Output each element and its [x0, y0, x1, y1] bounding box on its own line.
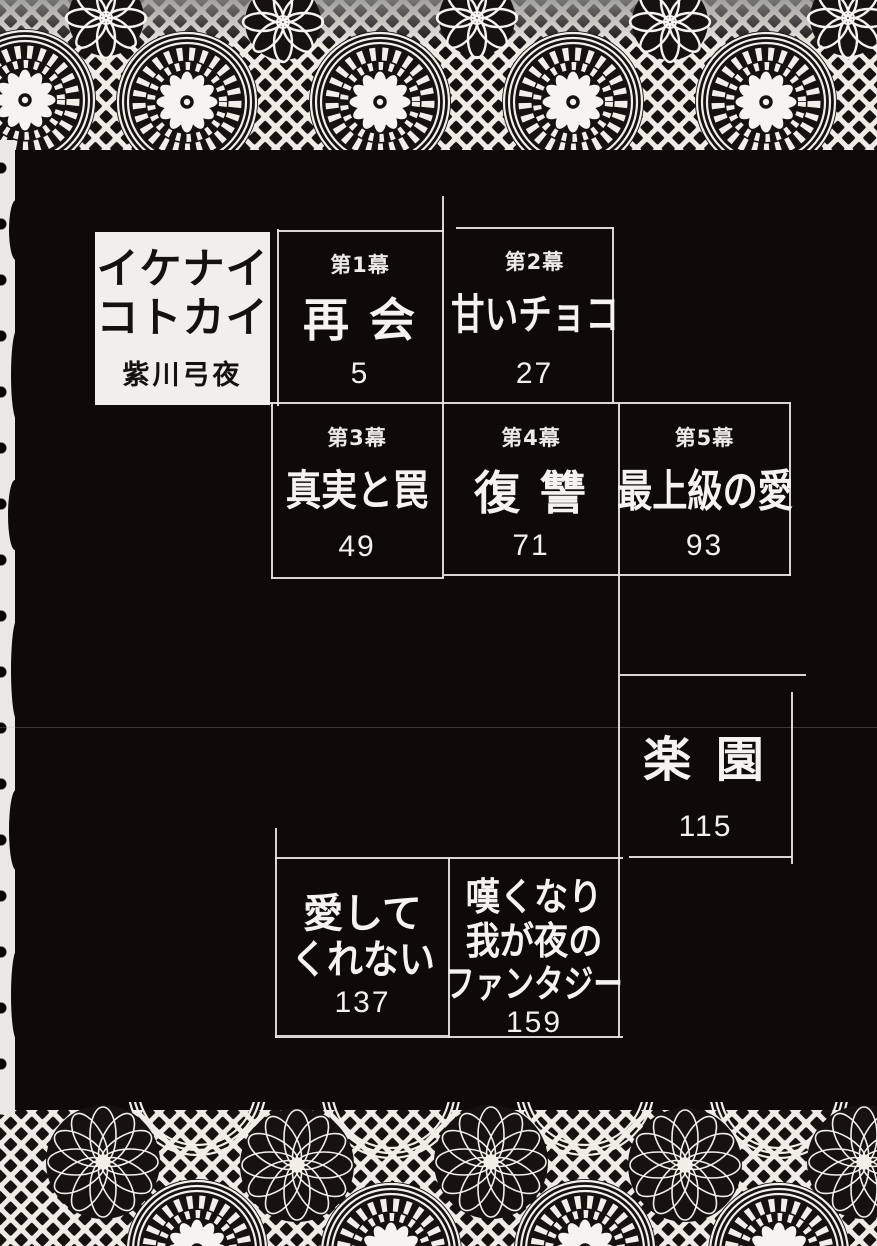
grid-line [629, 856, 792, 858]
chapter-title: 復 讐 [474, 468, 588, 519]
chapter-act-label: 第1幕 [330, 249, 390, 279]
grid-line [271, 577, 444, 579]
grid-line [791, 692, 793, 864]
chapter-cell-8: 嘆くなり 我が夜の ファンタジー 159 [450, 859, 618, 1036]
author-name: 紫川弓夜 [123, 353, 243, 392]
chapter-act-label: 第2幕 [505, 246, 565, 276]
chapter-cell-5: 第5幕 最上級の愛 93 [620, 404, 789, 575]
page-edge-blob [11, 620, 23, 720]
page-edge-blob [11, 950, 23, 1040]
chapter-cell-3: 第3幕 真実と罠 49 [272, 404, 442, 576]
page-edge-blob [9, 790, 23, 870]
lace-border-bottom-decoration [0, 1102, 877, 1246]
chapter-title: 楽 園 [643, 734, 768, 787]
chapter-title: 最上級の愛 [617, 468, 793, 516]
chapter-title-line: ファンタジー [445, 962, 623, 1006]
series-title-line1: イケナイ [96, 245, 268, 294]
chapter-title-line: 嘆くなり [431, 875, 636, 919]
chapter-title: 再 会 [303, 295, 417, 346]
chapter-title-line: 愛して [283, 891, 443, 937]
lace-border-top-decoration [0, 0, 877, 150]
chapter-page-number: 5 [351, 357, 370, 391]
chapter-cell-2: 第2幕 甘いチョコ 27 [457, 228, 612, 403]
chapter-page-number: 49 [338, 530, 375, 564]
chapter-page-number: 93 [686, 529, 723, 563]
chapter-act-label: 第5幕 [675, 422, 735, 452]
series-title-box: イケナイ コトカイ 紫川弓夜 [95, 232, 270, 405]
chapter-page-number: 159 [506, 1006, 562, 1040]
chapter-page-number: 137 [334, 986, 390, 1020]
toc-page: イケナイ コトカイ 紫川弓夜 第1幕 再 会 5 第2幕 甘いチョコ 27 第3… [0, 0, 877, 1246]
chapter-cell-6: 楽 園 115 [620, 676, 791, 856]
page-edge-blob [8, 480, 22, 550]
page-edge-blob [9, 200, 23, 260]
chapter-title-line: 我が夜の [431, 919, 636, 963]
chapter-page-number: 115 [679, 810, 733, 844]
chapter-title: 甘いチョコ [451, 292, 619, 338]
chapter-cell-1: 第1幕 再 会 5 [278, 231, 442, 403]
chapter-page-number: 27 [516, 357, 553, 391]
chapter-page-number: 71 [512, 529, 549, 563]
page-edge-blob [11, 330, 23, 420]
chapter-cell-4: 第4幕 復 讐 71 [444, 404, 618, 575]
chapter-title: 真実と罠 [286, 468, 429, 514]
chapter-act-label: 第3幕 [327, 422, 387, 452]
chapter-act-label: 第4幕 [501, 422, 561, 452]
chapter-title-line: くれない [291, 937, 435, 983]
series-title-line2: コトカイ [96, 294, 268, 343]
